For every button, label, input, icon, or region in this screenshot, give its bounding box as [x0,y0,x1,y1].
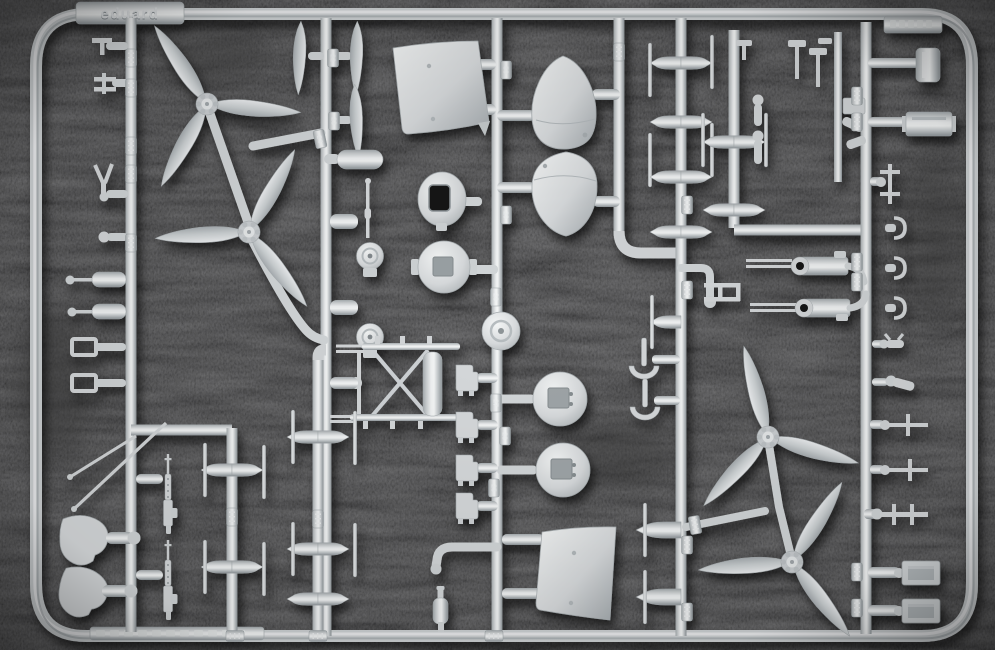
vignette [0,0,995,650]
photo-canvas: eduard eduard [0,0,995,650]
sprue-photo: eduard eduard [0,0,995,650]
